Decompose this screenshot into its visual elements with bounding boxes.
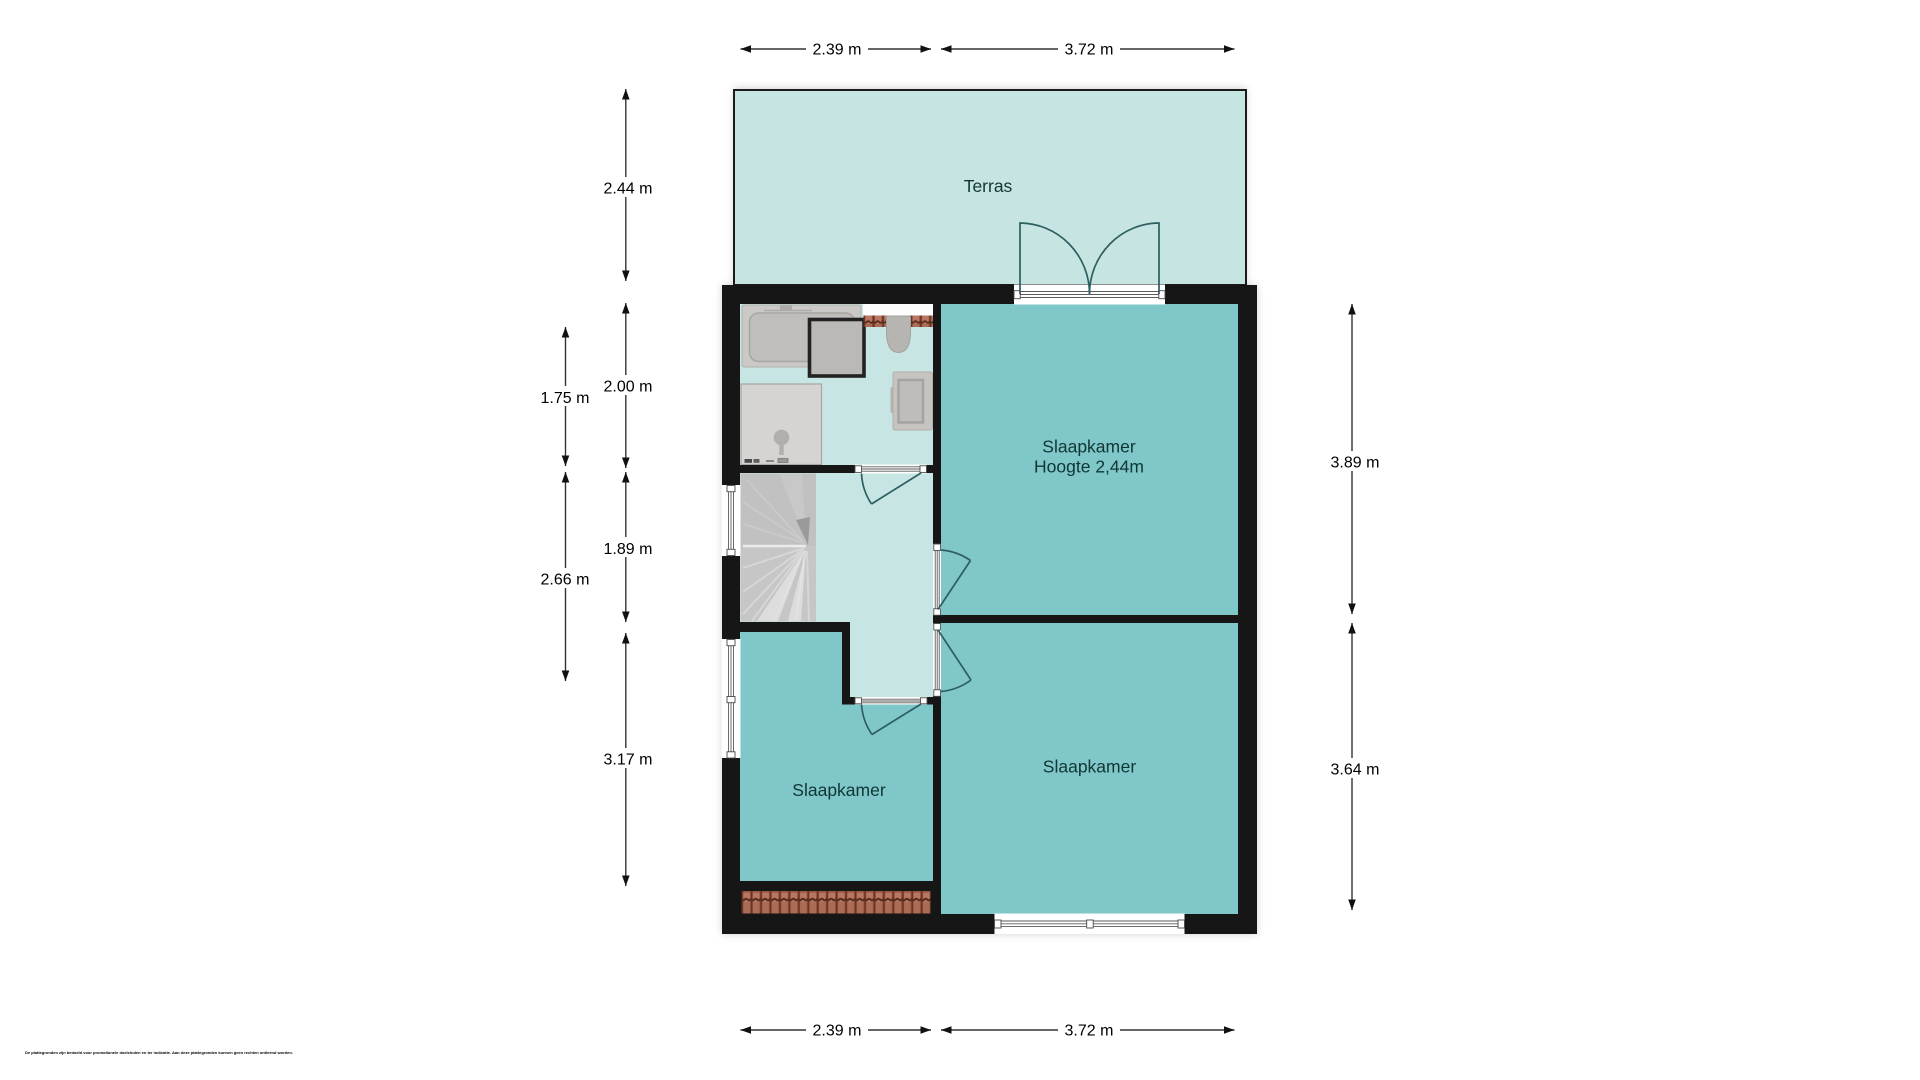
svg-text:1.89 m: 1.89 m	[604, 541, 653, 558]
svg-text:3.64 m: 3.64 m	[1331, 762, 1380, 779]
svg-text:Slaapkamer: Slaapkamer	[1043, 757, 1137, 777]
svg-text:1.75 m: 1.75 m	[541, 390, 590, 407]
svg-text:3.89 m: 3.89 m	[1331, 455, 1380, 472]
svg-text:3.72 m: 3.72 m	[1065, 1023, 1114, 1040]
svg-text:3.17 m: 3.17 m	[604, 752, 653, 769]
svg-text:3.72 m: 3.72 m	[1065, 42, 1114, 59]
svg-text:Slaapkamer: Slaapkamer	[792, 780, 886, 800]
svg-text:2.39 m: 2.39 m	[813, 42, 862, 59]
svg-text:2.66 m: 2.66 m	[541, 572, 590, 589]
svg-text:2.39 m: 2.39 m	[813, 1023, 862, 1040]
svg-text:2.44 m: 2.44 m	[604, 181, 653, 198]
svg-text:Slaapkamer: Slaapkamer	[1042, 437, 1136, 457]
svg-text:Terras: Terras	[964, 176, 1013, 196]
svg-text:Hoogte 2,44m: Hoogte 2,44m	[1034, 456, 1144, 476]
svg-text:2.00 m: 2.00 m	[604, 379, 653, 396]
svg-text:De plattegronden zijn bedoeld: De plattegronden zijn bedoeld voor promo…	[25, 1050, 293, 1055]
